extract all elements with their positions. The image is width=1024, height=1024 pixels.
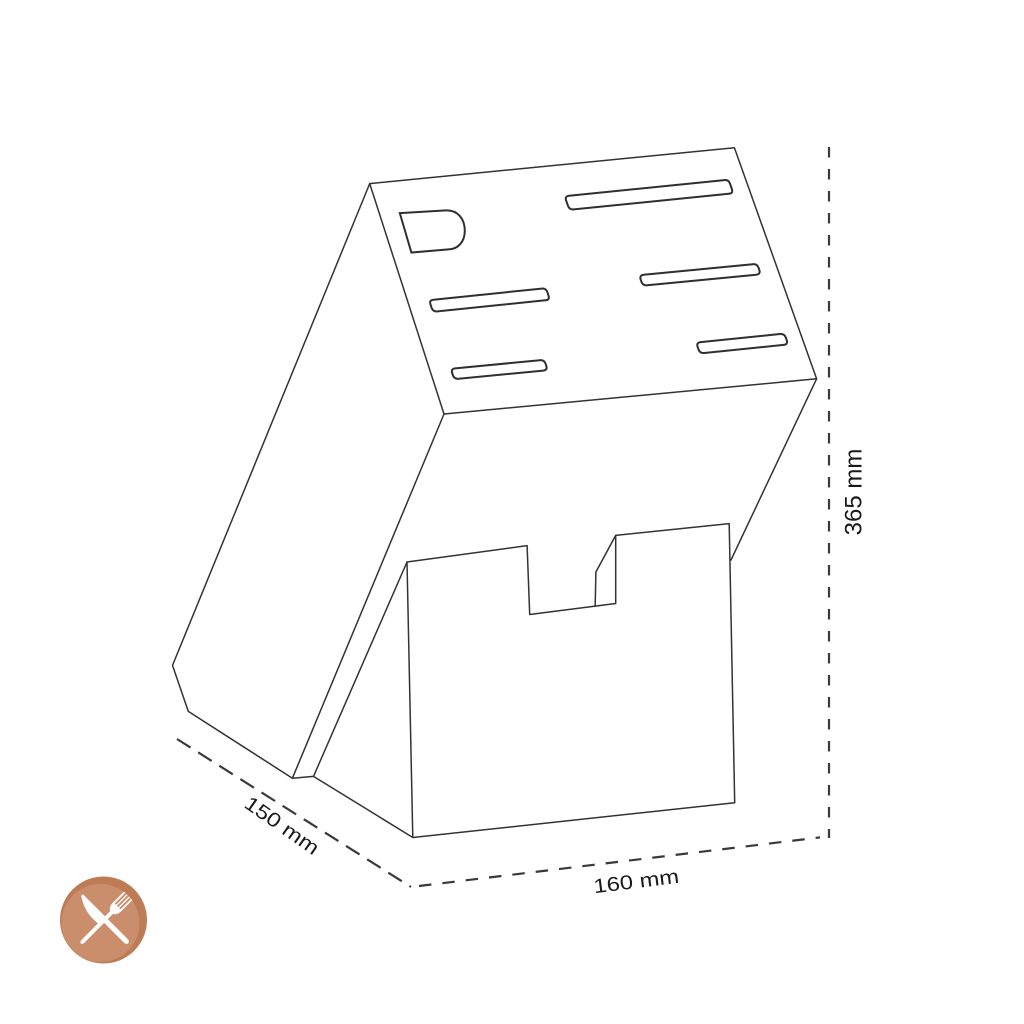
svg-text:160 mm: 160 mm xyxy=(592,865,680,898)
svg-text:365 mm: 365 mm xyxy=(841,449,868,536)
svg-text:150 mm: 150 mm xyxy=(240,791,323,859)
